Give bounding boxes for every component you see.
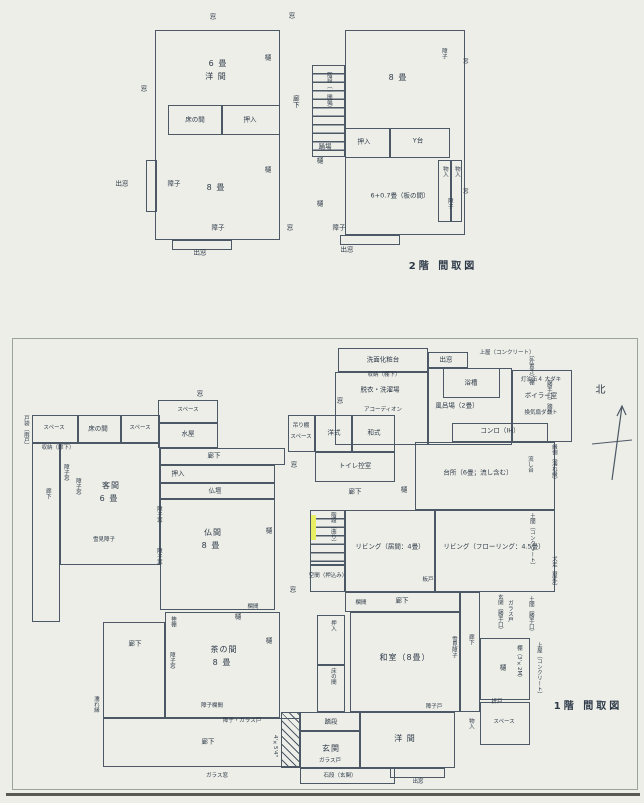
sink-label: 流し台 <box>526 456 532 473</box>
window-label: 窓 <box>290 587 297 594</box>
shoji-label: 障子 <box>333 225 346 232</box>
space-label: スペース <box>290 435 311 441</box>
shoji-label: 障子 <box>446 198 452 209</box>
shoji-window-label: 障子窓 <box>155 548 161 565</box>
laundry-label: 脱衣・洗濯場 <box>361 387 400 394</box>
washstand-label: 洗面化粧台 <box>367 357 400 364</box>
outdoor-shelf-label: （外置き）棚 <box>527 352 533 385</box>
north-arrow-icon <box>588 398 634 486</box>
dimension-label: 4'×5'4" <box>271 735 277 757</box>
toilet-ante-label: トイレ控室 <box>339 463 372 470</box>
closet-label: 押入 <box>358 139 371 146</box>
mizuya-label: 水屋 <box>182 431 195 438</box>
stairs-label: 階段（曲り） <box>329 512 335 545</box>
stone-steps-label: 石段（玄関） <box>323 774 356 780</box>
floor2-caption: 2階 間取図 <box>409 262 477 273</box>
backdoor-entrance-label: 玄関（勝手口） <box>496 594 502 633</box>
shoji-label: 障子 <box>212 225 225 232</box>
yukimi-shoji-label: 雪見障子 <box>450 636 456 658</box>
wall-divider <box>77 415 79 443</box>
corridor-label: 廊下 <box>208 453 221 460</box>
wall-divider <box>450 160 452 222</box>
tokonoma-label: 床の間 <box>88 426 108 433</box>
kitchen-label: 台所（6畳；流し含む） <box>443 470 512 477</box>
youma-label: 洋 間 <box>394 735 416 743</box>
room-living-flooring <box>435 510 555 592</box>
storage-label: 物入 <box>453 166 459 177</box>
shoji-window-label: 障子窓 <box>168 652 174 669</box>
storage-label: 物入 <box>441 166 447 177</box>
canopy-label: 上屋（コンクリート） <box>535 642 541 697</box>
ydai-label: Y台 <box>413 138 423 145</box>
room-name-label: 洋 間 <box>205 73 227 81</box>
tokonoma-label: 床の間 <box>185 117 205 124</box>
shoji-glass-door-label: 障子・ガラス戸 <box>223 719 261 725</box>
room-butsuma <box>160 499 275 610</box>
folding-door-label: 折戸 <box>491 700 502 706</box>
genkan-label: 玄関 <box>322 745 340 753</box>
baywindow-label: 出窓 <box>116 181 129 188</box>
closet-label: 押入 <box>172 471 185 478</box>
window-label: 窓 <box>337 398 344 405</box>
window-label: 窓 <box>141 86 148 93</box>
chanoma-size-label: 8 畳 <box>213 659 232 667</box>
gutter-label: 樋 <box>266 528 273 535</box>
window-label: 窓 <box>461 188 467 194</box>
room-size-label: 8 畳 <box>389 74 408 82</box>
void-label: 空間（押込み） <box>309 574 348 580</box>
shoji-window-label: 障子窓 <box>62 464 68 481</box>
butsuma-size-label: 8 畳 <box>202 542 221 550</box>
corridor-west <box>32 443 60 622</box>
shoji-ranma-label: 障子欄間 <box>201 704 223 710</box>
stairs-label: 階段（一間幅） <box>325 72 331 111</box>
bathroom-label: 風呂場（2畳） <box>435 403 478 410</box>
corridor-label: 廊下 <box>292 95 299 108</box>
closet-label: 押入 <box>244 117 257 124</box>
yukimi-shoji-label: 雪見障子 <box>93 538 115 544</box>
landing-label: 踊場 <box>319 144 332 151</box>
space-label: スペース <box>129 426 150 432</box>
scan-edge <box>6 793 640 796</box>
guest-room-label: 客間 <box>102 482 120 490</box>
backdoor-steps-label: （勝手口）踏段 <box>545 376 551 415</box>
space-label: スペース <box>493 720 514 726</box>
wall-divider <box>120 415 122 443</box>
ranma-label: 欄間 <box>355 601 366 607</box>
corridor-label: 廊下 <box>467 634 473 645</box>
corridor-label: 廊下 <box>129 641 142 648</box>
corridor-label: 廊下 <box>44 488 50 499</box>
glass-window-label: ガラス窓 <box>206 774 228 780</box>
window-label: 窓 <box>287 225 294 232</box>
room-name-label: 6+0.7畳（板の間） <box>371 193 430 200</box>
kamidana-label: 神棚 <box>169 616 175 627</box>
space-label: スペース <box>177 408 198 414</box>
storage-label: 収納（廊下） <box>41 446 74 452</box>
entrance-slope <box>281 712 300 768</box>
baywindow-label: 出窓 <box>440 357 453 364</box>
vent-duct-label: 換気扇ダクト <box>524 411 557 417</box>
gutter-label: 樋 <box>266 638 273 645</box>
wall-divider <box>300 730 360 732</box>
tokonoma-label: 床の間 <box>329 668 335 685</box>
veranda-label: 縁側（濡れ縁） <box>550 444 556 483</box>
board-door-label: 板戸 <box>422 578 433 584</box>
baywindow-label: 出窓 <box>341 247 354 254</box>
gutter-label: 樋 <box>317 201 324 208</box>
backdoor-doma-label: 土間（勝手口） <box>527 596 533 635</box>
room-guest <box>60 443 160 565</box>
corridor-band <box>160 448 285 465</box>
window-label: 窓 <box>461 58 467 64</box>
baywindow-youma <box>390 768 445 778</box>
shoji-window-label: 障子窓 <box>155 506 161 523</box>
storage-label: 収納（棚下） <box>367 373 400 379</box>
corridor-label: 廊下 <box>396 598 409 605</box>
gutter-label: 樋 <box>401 487 408 494</box>
floor1-caption: 1階 間取図 <box>554 702 622 713</box>
steps-label: 踏段 <box>325 719 338 726</box>
wall-divider <box>158 422 218 424</box>
corridor-southwest <box>103 622 165 718</box>
stove-label: コンロ（IH） <box>480 428 519 435</box>
window-label: 窓 <box>210 14 217 21</box>
shutter-box-label: 戸袋（雨戸） <box>22 415 28 448</box>
shoji-door-label: 障子戸 <box>426 705 443 711</box>
butsudan-label: 仏壇 <box>209 488 222 495</box>
boiler-label: ボイラー室 <box>525 393 558 400</box>
storage-label: 物入 <box>467 718 473 729</box>
gutter-label: 樋 <box>500 665 507 672</box>
gutter-label: 樋 <box>265 55 272 62</box>
gutter-label: 樋 <box>317 158 324 165</box>
room-size-label: 8 畳 <box>207 184 226 192</box>
closet-label: 押入 <box>329 620 335 631</box>
bathtub-label: 浴槽 <box>465 380 478 387</box>
window-label: 窓 <box>289 13 296 20</box>
baywindow-2f-west <box>146 160 157 212</box>
ranma-label: 欄間 <box>247 605 258 611</box>
doma-label: 土間（コンクリート） <box>528 513 534 568</box>
shoji-label: 障子 <box>440 48 446 59</box>
space-label: スペース <box>43 426 64 432</box>
room-size-label: 6 畳 <box>209 60 228 68</box>
gutter-label: 樋 <box>265 167 272 174</box>
butsuma-label: 仏間 <box>204 529 222 537</box>
toilet-western-label: 洋式 <box>328 430 341 437</box>
accordion-door-label: アコーディオン <box>364 408 402 414</box>
north-label: 北 <box>596 386 607 397</box>
baywindow-label: 出窓 <box>194 250 207 257</box>
gutter-label: 樋 <box>235 614 242 621</box>
inubashiri-label: 犬走（屋外） <box>550 556 556 589</box>
corridor-east <box>460 592 480 712</box>
glass-door-label: ガラス戸 <box>319 759 341 765</box>
shoji-label: 障子 <box>168 181 181 188</box>
highlight-marker <box>311 515 316 540</box>
window-label: 窓 <box>291 462 298 469</box>
glass-door-label: ガラス戸 <box>506 600 512 622</box>
corridor-label: 廊下 <box>349 489 362 496</box>
chanoma-label: 茶の間 <box>211 646 238 654</box>
washitsu-label: 和室（8畳） <box>379 654 430 662</box>
hanging-shelf-label: 吊り棚 <box>293 424 310 430</box>
shoji-window-label: 障子窓 <box>74 478 80 495</box>
shelf-dim-label: 棚（3'×2M） <box>515 645 521 681</box>
wet-veranda-label: 濡れ縁 <box>92 696 98 713</box>
guest-room-size-label: 6 畳 <box>100 495 119 503</box>
window-label: 窓 <box>197 391 204 398</box>
toilet-japanese-label: 和式 <box>368 430 381 437</box>
baywindow-2f-southeast <box>340 235 400 245</box>
floorplan-page: 窓 窓 窓 樋 6 畳 洋 間 床の間 押入 出窓 障子 8 畳 樋 障子 出窓… <box>0 0 644 803</box>
baywindow-label: 出窓 <box>412 780 423 786</box>
living-ima-label: リビング（居間：4畳） <box>355 544 424 551</box>
corridor-label: 廊下 <box>202 739 215 746</box>
